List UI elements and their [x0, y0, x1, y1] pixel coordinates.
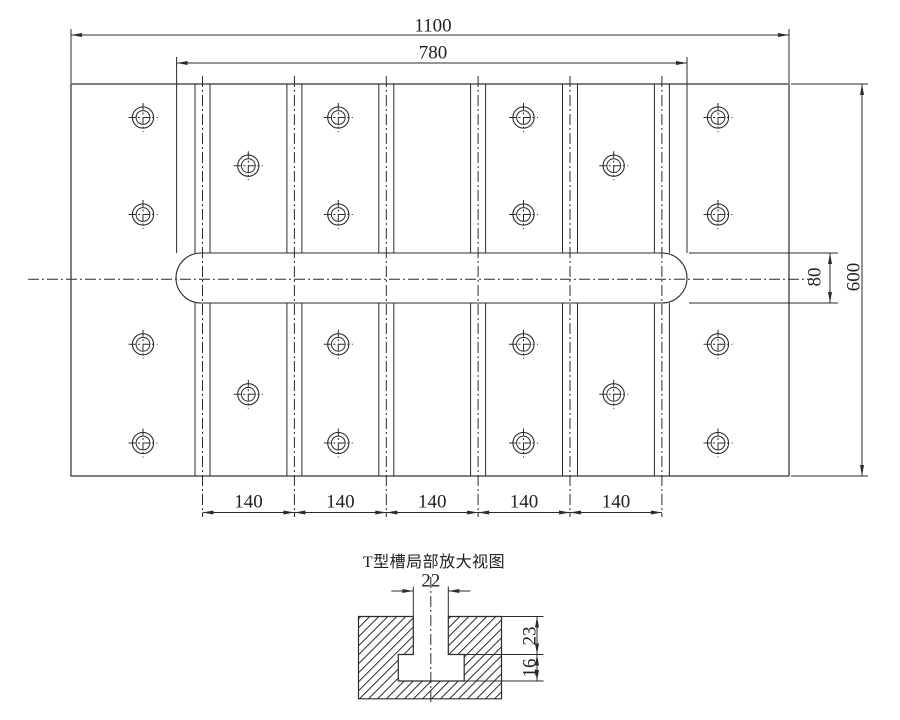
bolt-hole: [324, 429, 353, 458]
dim-label-total-width: 1100: [414, 17, 451, 36]
bolt-hole: [509, 200, 538, 229]
bolt-hole: [129, 429, 158, 458]
bolt-hole: [509, 429, 538, 458]
hatch-pattern: [264, 605, 607, 705]
bolt-hole: [129, 330, 158, 359]
bolt-hole: [599, 380, 628, 409]
bolt-hole: [704, 429, 733, 458]
cad-drawing-canvas: 110078060080140140140140140T型槽局部放大视图2223…: [0, 0, 900, 720]
main-view-drawing: [28, 29, 868, 517]
bolt-hole: [234, 380, 263, 409]
bolt-hole: [704, 200, 733, 229]
dim-label-pitch-4: 140: [510, 492, 539, 511]
bolt-hole: [324, 103, 353, 132]
dim-label-center-slot-width: 80: [806, 268, 825, 287]
detail-view-drawing: [264, 577, 607, 705]
dim-label-pitch-5: 140: [602, 492, 631, 511]
bolt-hole: [599, 151, 628, 180]
bolt-hole: [324, 330, 353, 359]
bolt-hole: [509, 103, 538, 132]
bolt-hole: [129, 103, 158, 132]
bolt-hole: [509, 330, 538, 359]
dim-label-detail-foot-height: 16: [521, 658, 540, 677]
bolt-hole: [704, 103, 733, 132]
dim-label-pitch-1: 140: [234, 492, 263, 511]
dim-label-pitch-2: 140: [326, 492, 355, 511]
bolt-hole: [234, 151, 263, 180]
detail-view-title: T型槽局部放大视图: [363, 555, 505, 571]
engineering-drawing: [0, 0, 900, 720]
dim-label-slot-region-width: 780: [419, 44, 448, 63]
dim-label-detail-slot-depth: 23: [521, 626, 540, 645]
bolt-hole: [129, 200, 158, 229]
bolt-hole: [324, 200, 353, 229]
dim-label-detail-slot-width: 22: [421, 572, 440, 591]
bolt-hole: [704, 330, 733, 359]
dim-label-pitch-3: 140: [418, 492, 447, 511]
dim-label-total-height: 600: [845, 263, 864, 292]
